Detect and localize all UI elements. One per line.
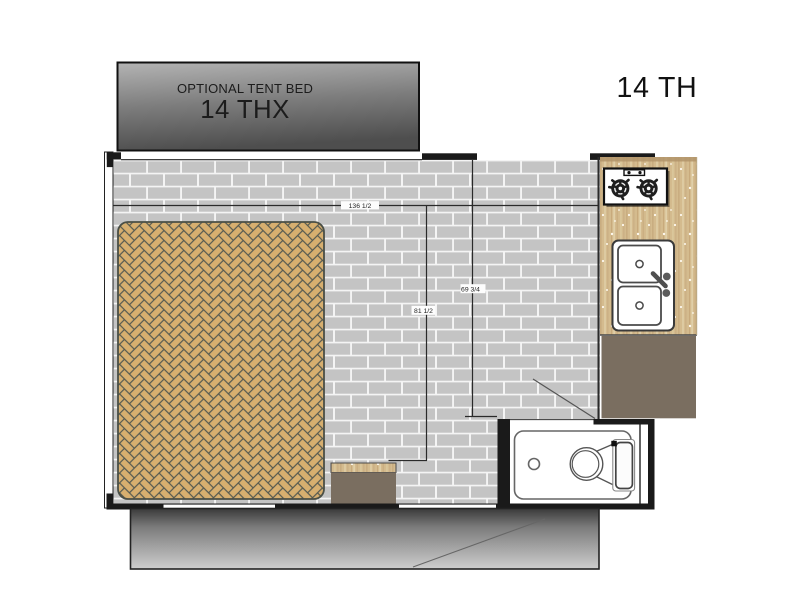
svg-text:81 1/2: 81 1/2 (414, 308, 433, 315)
svg-text:14 THX: 14 THX (200, 96, 289, 124)
svg-text:69 3/4: 69 3/4 (461, 287, 480, 294)
svg-text:14 TH: 14 TH (616, 72, 697, 104)
svg-text:136 1/2: 136 1/2 (349, 203, 372, 210)
svg-text:OPTIONAL TENT BED: OPTIONAL TENT BED (177, 81, 313, 96)
